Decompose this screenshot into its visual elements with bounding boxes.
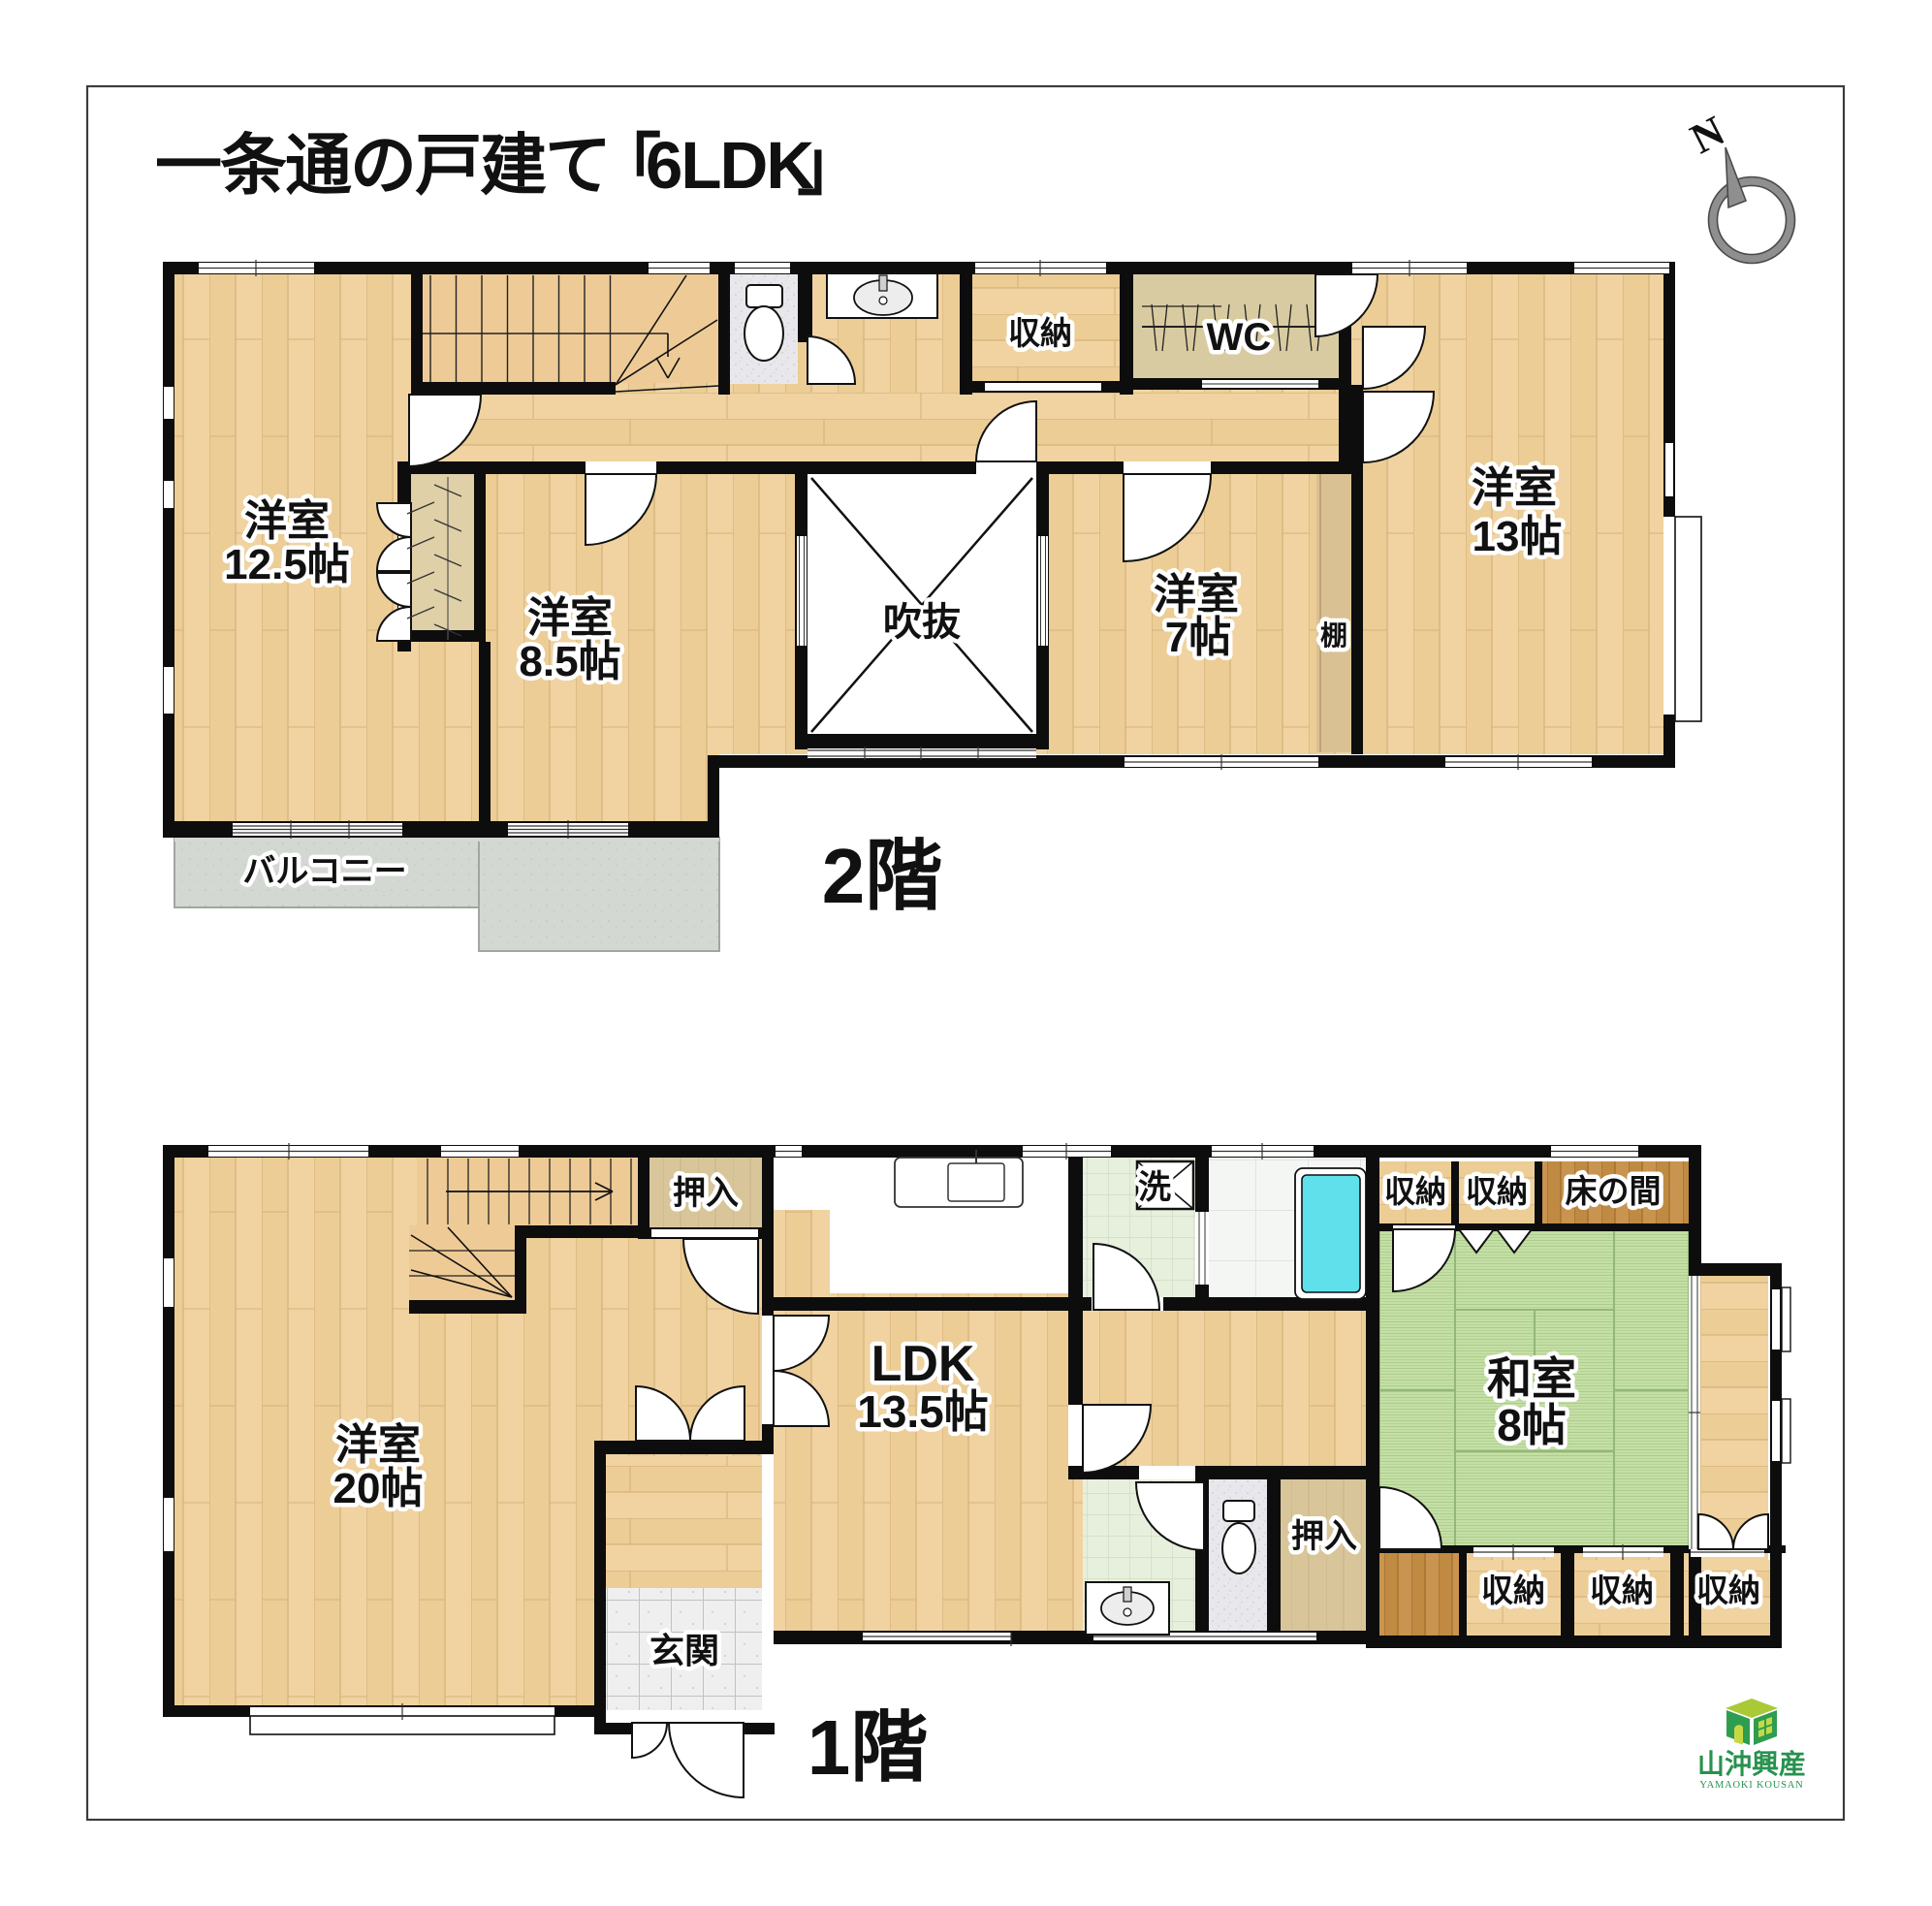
svg-text:和室: 和室	[1487, 1353, 1576, 1404]
svg-text:収納: 収納	[1481, 1572, 1545, 1608]
svg-text:収納: 収納	[1384, 1174, 1446, 1209]
svg-text:押入: 押入	[1291, 1518, 1357, 1555]
svg-text:山沖興産: 山沖興産	[1697, 1748, 1806, 1779]
svg-text:13.5帖: 13.5帖	[857, 1386, 989, 1437]
svg-text:8.5帖: 8.5帖	[519, 638, 620, 685]
svg-text:2階: 2階	[822, 833, 943, 919]
svg-text:棚: 棚	[1320, 620, 1347, 651]
svg-text:バルコニー: バルコニー	[242, 853, 406, 890]
svg-text:洋室: 洋室	[527, 593, 613, 642]
svg-text:吹抜: 吹抜	[883, 601, 961, 644]
svg-text:洋室: 洋室	[1154, 570, 1239, 619]
svg-text:洋室: 洋室	[335, 1420, 421, 1469]
svg-text:玄関: 玄関	[649, 1631, 719, 1670]
svg-text:収納: 収納	[1466, 1174, 1528, 1209]
svg-text:収納: 収納	[1008, 315, 1072, 351]
svg-text:1階: 1階	[808, 1704, 929, 1791]
svg-text:床の間: 床の間	[1566, 1173, 1662, 1209]
svg-text:20帖: 20帖	[333, 1465, 424, 1512]
svg-text:洋室: 洋室	[1472, 463, 1557, 512]
svg-text:押入: 押入	[673, 1175, 739, 1212]
svg-text:LDK: LDK	[871, 1336, 975, 1392]
svg-text:収納: 収納	[1696, 1572, 1760, 1608]
svg-text:7帖: 7帖	[1165, 614, 1231, 661]
svg-text:12.5帖: 12.5帖	[224, 541, 350, 588]
svg-text:収納: 収納	[1590, 1572, 1654, 1608]
svg-text:一条通の戸建て「6LDK」: 一条通の戸建て「6LDK」	[155, 128, 862, 203]
svg-text:8帖: 8帖	[1497, 1400, 1567, 1450]
svg-text:洗: 洗	[1138, 1169, 1171, 1206]
svg-text:WC: WC	[1207, 316, 1272, 359]
svg-text:洋室: 洋室	[244, 496, 330, 545]
svg-text:13帖: 13帖	[1473, 513, 1563, 560]
svg-text:YAMAOKI KOUSAN: YAMAOKI KOUSAN	[1699, 1780, 1803, 1791]
